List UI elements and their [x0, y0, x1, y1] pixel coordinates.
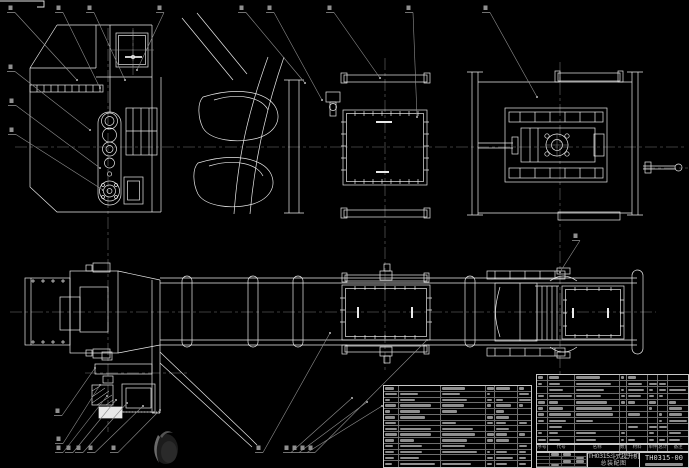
- cell-text-smudge: [669, 389, 686, 392]
- cell-text-smudge: [538, 395, 544, 398]
- bom-cell: [575, 375, 619, 380]
- bom-cell: [620, 375, 627, 380]
- cell-text-smudge: [659, 420, 662, 423]
- cell-text-smudge: [442, 410, 457, 413]
- cell-text-smudge: [385, 416, 395, 419]
- cell-text-smudge: [496, 422, 506, 425]
- bom-cell: [627, 387, 649, 392]
- bom-cell: [495, 392, 518, 397]
- bom-cell: [518, 386, 531, 391]
- cell-text-smudge: [487, 463, 492, 466]
- bom-cell: [384, 415, 399, 420]
- bom-cell: [441, 403, 487, 408]
- bom-cell: [575, 394, 619, 399]
- cell-text-smudge: [659, 395, 663, 398]
- bom-row: [384, 461, 531, 467]
- callout: [291, 401, 368, 453]
- bom-cell: [495, 426, 518, 431]
- cell-text-smudge: [385, 422, 396, 425]
- cell-text-smudge: [538, 401, 545, 404]
- cell-text-smudge: [519, 399, 531, 402]
- cell-text-smudge: [519, 393, 529, 396]
- bom-cell: [648, 400, 658, 405]
- bom-cell: [548, 381, 576, 386]
- bom-cell: [620, 437, 627, 443]
- cell-text-smudge: [519, 463, 526, 466]
- callout: [136, 6, 164, 72]
- bom-cell: [575, 412, 619, 417]
- bom-header-cell: 材料: [627, 445, 649, 451]
- bom-cell: [575, 406, 619, 411]
- cell-text-smudge: [442, 463, 471, 466]
- callout-number: [293, 446, 297, 451]
- bom-cell: [627, 406, 649, 411]
- bom-cell: [384, 386, 399, 391]
- bom-cell: [495, 432, 518, 437]
- callout-number: [240, 6, 244, 11]
- cell-text-smudge: [400, 404, 431, 407]
- bom-cell: [518, 409, 531, 414]
- cell-text-smudge: [576, 460, 584, 463]
- bom-cell: [384, 398, 399, 403]
- cell-text-smudge: [621, 401, 626, 404]
- bom-cell: [518, 415, 531, 420]
- bom-cell: [495, 450, 518, 455]
- cell-text-smudge: [563, 460, 571, 463]
- cell-text-smudge: [576, 420, 592, 423]
- bom-cell: [441, 415, 487, 420]
- bom-cell: [441, 398, 487, 403]
- cell-text-smudge: [576, 389, 603, 392]
- bom-cell: [668, 400, 688, 405]
- bom-cell: [537, 406, 548, 411]
- bom-cell: [627, 412, 649, 417]
- cell-text-smudge: [563, 453, 571, 456]
- bom-cell: [658, 412, 668, 417]
- bom-cell: [658, 381, 668, 386]
- cell-text-smudge: [576, 457, 584, 460]
- callout-number: [407, 6, 411, 11]
- cell-text-smudge: [576, 432, 596, 435]
- bom-cell: [486, 461, 495, 467]
- bom-cell: [441, 421, 487, 426]
- callout: [8, 99, 101, 170]
- cell-text-smudge: [659, 413, 662, 416]
- bom-header-cell: 备注: [668, 445, 688, 451]
- bom-cell: [399, 409, 441, 414]
- cell-text-smudge: [538, 432, 542, 435]
- bom-cell: [486, 444, 495, 449]
- cell-text-smudge: [442, 428, 473, 431]
- bom-cell: [399, 461, 441, 467]
- bom-cell: [486, 438, 495, 443]
- bom-cell: [627, 431, 649, 436]
- cell-text-smudge: [551, 464, 559, 467]
- callout-number: [67, 446, 71, 451]
- bom-cell: [495, 403, 518, 408]
- cell-text-smudge: [576, 401, 607, 404]
- bom-cell: [399, 392, 441, 397]
- bom-cell: [518, 455, 531, 460]
- callout-number: [88, 6, 92, 11]
- bom-cell: [495, 386, 518, 391]
- bom-cell: [495, 398, 518, 403]
- cell-text-smudge: [551, 453, 559, 456]
- bom-cell: [627, 400, 649, 405]
- cell-text-smudge: [496, 387, 510, 390]
- cell-text-smudge: [385, 387, 394, 390]
- cell-text-smudge: [487, 439, 493, 442]
- callout: [7, 65, 91, 132]
- cad-drawing-canvas: 序号代号名称数量材料单件总计备注 TH0315斗式提升机 总装配图 TH0315…: [0, 0, 689, 468]
- callout: [86, 6, 126, 82]
- cell-text-smudge: [576, 376, 600, 379]
- callout-number: [57, 446, 61, 451]
- bom-cell: [518, 444, 531, 449]
- callout: [559, 234, 580, 274]
- bom-cell: [620, 412, 627, 417]
- revision-grid-cell: [575, 464, 588, 468]
- bom-header-row: 序号代号名称数量材料单件总计备注: [536, 444, 689, 452]
- sheet-title: 总装配图: [600, 460, 626, 467]
- cell-text-smudge: [385, 439, 394, 442]
- bom-cell: [648, 418, 658, 423]
- cell-text-smudge: [628, 376, 637, 379]
- callout-number: [309, 446, 313, 451]
- cell-text-smudge: [659, 389, 666, 392]
- cell-text-smudge: [669, 439, 680, 442]
- cell-text-smudge: [621, 389, 625, 392]
- callout-number: [9, 65, 13, 70]
- bom-cell: [620, 381, 627, 386]
- bom-cell: [548, 400, 576, 405]
- cell-text-smudge: [621, 432, 625, 435]
- bom-cell: [658, 394, 668, 399]
- cell-text-smudge: [628, 439, 636, 442]
- cell-text-smudge: [487, 451, 490, 454]
- bom-cell: [441, 438, 487, 443]
- drawing-number-cell: TH0315-00: [640, 453, 688, 467]
- cell-text-smudge: [538, 420, 544, 423]
- callout-number: [10, 128, 14, 133]
- cell-text-smudge: [549, 401, 558, 404]
- cell-text-smudge: [538, 439, 546, 442]
- bom-cell: [486, 455, 495, 460]
- cell-text-smudge: [549, 395, 572, 398]
- bom-table-left: [383, 385, 532, 468]
- bom-cell: [495, 455, 518, 460]
- cell-text-smudge: [496, 439, 508, 442]
- cell-text-smudge: [400, 445, 422, 448]
- bom-cell: [575, 418, 619, 423]
- revision-grid-cell: [562, 464, 575, 468]
- bom-cell: [441, 409, 487, 414]
- bom-cell: [668, 375, 688, 380]
- bom-cell: [399, 403, 441, 408]
- bom-cell: [548, 424, 576, 429]
- callout: [255, 332, 331, 453]
- callout: [55, 6, 101, 90]
- callout-number: [158, 6, 162, 11]
- cell-text-smudge: [496, 399, 503, 402]
- bom-cell: [658, 431, 668, 436]
- bom-cell: [399, 432, 441, 437]
- bom-cell: [441, 461, 487, 467]
- cell-text-smudge: [487, 387, 494, 390]
- callout-number: [257, 446, 261, 451]
- bom-cell: [518, 461, 531, 467]
- bom-cell: [441, 426, 487, 431]
- centerlines: [10, 28, 688, 432]
- cell-text-smudge: [549, 432, 558, 435]
- bom-cell: [495, 444, 518, 449]
- bom-table-right: [536, 374, 689, 444]
- cell-text-smudge: [628, 395, 641, 398]
- bom-cell: [548, 412, 576, 417]
- cell-text-smudge: [649, 383, 656, 386]
- bom-cell: [648, 424, 658, 429]
- cell-text-smudge: [649, 407, 652, 410]
- bom-cell: [575, 437, 619, 443]
- bom-cell: [658, 406, 668, 411]
- cell-text-smudge: [659, 439, 664, 442]
- cell-text-smudge: [385, 428, 397, 431]
- bom-cell: [384, 392, 399, 397]
- cell-text-smudge: [400, 457, 419, 460]
- bom-header-cell: 数量: [620, 445, 627, 451]
- bom-cell: [548, 387, 576, 392]
- bom-cell: [384, 455, 399, 460]
- bom-cell: [648, 394, 658, 399]
- callout: [299, 405, 383, 453]
- bom-cell: [537, 412, 548, 417]
- cell-text-smudge: [628, 383, 642, 386]
- cell-text-smudge: [385, 393, 397, 396]
- callout: [482, 6, 538, 99]
- bom-cell: [620, 394, 627, 399]
- cell-text-smudge: [576, 439, 595, 442]
- bom-cell: [658, 437, 668, 443]
- cell-text-smudge: [496, 416, 508, 419]
- bom-cell: [384, 409, 399, 414]
- bom-cell: [648, 437, 658, 443]
- bom-cell: [648, 381, 658, 386]
- cell-text-smudge: [519, 404, 523, 407]
- cell-text-smudge: [487, 457, 493, 460]
- cell-text-smudge: [442, 422, 456, 425]
- bom-cell: [384, 403, 399, 408]
- cell-text-smudge: [519, 422, 527, 425]
- bom-cell: [548, 375, 576, 380]
- cell-text-smudge: [576, 383, 610, 386]
- bom-cell: [648, 431, 658, 436]
- bom-cell: [648, 412, 658, 417]
- cell-text-smudge: [385, 463, 392, 466]
- bom-header-cell: 单件: [648, 445, 658, 451]
- cell-text-smudge: [385, 410, 390, 413]
- cell-text-smudge: [649, 401, 656, 404]
- drawing-title-cell: TH0315斗式提升机 总装配图: [588, 453, 640, 467]
- cell-text-smudge: [628, 389, 644, 392]
- callout: [54, 367, 96, 416]
- bom-cell: [658, 400, 668, 405]
- cell-text-smudge: [487, 393, 490, 396]
- cell-text-smudge: [442, 399, 468, 402]
- bom-cell: [648, 387, 658, 392]
- bom-cell: [620, 424, 627, 429]
- cell-text-smudge: [385, 451, 394, 454]
- cell-text-smudge: [442, 451, 477, 454]
- bom-cell: [399, 398, 441, 403]
- cell-text-smudge: [442, 445, 465, 448]
- callout-number: [268, 6, 272, 11]
- cell-text-smudge: [549, 383, 560, 386]
- cell-text-smudge: [496, 433, 507, 436]
- bom-cell: [384, 438, 399, 443]
- title-block: TH0315斗式提升机 总装配图 TH0315-00: [536, 452, 689, 468]
- bom-cell: [548, 418, 576, 423]
- cell-text-smudge: [496, 404, 511, 407]
- callout-number: [77, 446, 81, 451]
- bom-cell: [575, 387, 619, 392]
- bom-cell: [620, 400, 627, 405]
- cell-text-smudge: [549, 426, 562, 429]
- bom-cell: [384, 461, 399, 467]
- cell-text-smudge: [649, 426, 657, 429]
- bom-cell: [399, 438, 441, 443]
- bom-cell: [495, 415, 518, 420]
- bom-cell: [486, 421, 495, 426]
- cell-text-smudge: [576, 407, 611, 410]
- cell-text-smudge: [400, 463, 436, 466]
- bom-cell: [537, 387, 548, 392]
- sheet-border-corner: [0, 1, 44, 7]
- cell-text-smudge: [385, 457, 394, 460]
- cell-text-smudge: [621, 439, 624, 442]
- cell-text-smudge: [628, 426, 638, 429]
- cell-text-smudge: [649, 395, 653, 398]
- bom-cell: [575, 431, 619, 436]
- cell-text-smudge: [400, 399, 415, 402]
- bom-cell: [658, 418, 668, 423]
- cell-text-smudge: [519, 387, 524, 390]
- bom-cell: [648, 406, 658, 411]
- callout-number: [484, 6, 488, 11]
- bom-cell: [441, 432, 487, 437]
- bom-cell: [537, 381, 548, 386]
- cell-text-smudge: [487, 416, 493, 419]
- bom-cell: [648, 375, 658, 380]
- cell-text-smudge: [487, 433, 493, 436]
- callout: [326, 6, 381, 80]
- cell-text-smudge: [538, 376, 543, 379]
- cell-text-smudge: [385, 433, 397, 436]
- bom-cell: [668, 394, 688, 399]
- callout-number: [56, 409, 60, 414]
- bom-cell: [495, 461, 518, 467]
- bom-cell: [495, 409, 518, 414]
- bom-cell: [537, 431, 548, 436]
- bom-cell: [548, 437, 576, 443]
- revision-grid-cell: [550, 464, 563, 468]
- bom-cell: [575, 424, 619, 429]
- cell-text-smudge: [549, 389, 563, 392]
- cell-text-smudge: [487, 399, 492, 402]
- bom-cell: [548, 406, 576, 411]
- bom-cell: [384, 450, 399, 455]
- callout-number: [57, 6, 61, 11]
- cell-text-smudge: [496, 428, 508, 431]
- bom-cell: [486, 450, 495, 455]
- cell-text-smudge: [496, 451, 507, 454]
- cell-text-smudge: [538, 407, 543, 410]
- bom-cell: [668, 431, 688, 436]
- bom-cell: [441, 392, 487, 397]
- callout-number: [9, 6, 13, 11]
- cell-text-smudge: [400, 416, 425, 419]
- cell-text-smudge: [400, 428, 431, 431]
- bom-header-cell: 名称: [575, 445, 619, 451]
- cell-text-smudge: [659, 426, 667, 429]
- cell-text-smudge: [442, 387, 465, 390]
- cell-text-smudge: [669, 401, 675, 404]
- cell-text-smudge: [669, 413, 681, 416]
- bom-cell: [518, 438, 531, 443]
- cell-text-smudge: [628, 401, 635, 404]
- bom-cell: [384, 432, 399, 437]
- cell-text-smudge: [549, 376, 559, 379]
- bom-row: [537, 437, 688, 443]
- bom-cell: [548, 394, 576, 399]
- bom-cell: [537, 437, 548, 443]
- bom-cell: [627, 394, 649, 399]
- callout-number: [285, 446, 289, 451]
- cell-text-smudge: [442, 404, 465, 407]
- bom-cell: [668, 406, 688, 411]
- watermark-logo: [154, 431, 178, 464]
- cell-text-smudge: [669, 407, 682, 410]
- cell-text-smudge: [496, 410, 504, 413]
- cell-text-smudge: [549, 413, 571, 416]
- bom-cell: [668, 424, 688, 429]
- bom-cell: [620, 431, 627, 436]
- bom-cell: [575, 400, 619, 405]
- bom-cell: [486, 432, 495, 437]
- revision-grid-cell: [537, 464, 550, 468]
- drawing-number: TH0315-00: [645, 454, 683, 462]
- cell-text-smudge: [519, 451, 526, 454]
- bom-cell: [399, 455, 441, 460]
- cell-text-smudge: [519, 445, 527, 448]
- bom-cell: [441, 450, 487, 455]
- bom-cell: [518, 432, 531, 437]
- cell-text-smudge: [496, 463, 506, 466]
- bom-cell: [518, 426, 531, 431]
- bom-cell: [495, 421, 518, 426]
- bom-cell: [518, 392, 531, 397]
- bom-cell: [668, 381, 688, 386]
- bom-cell: [658, 424, 668, 429]
- bom-cell: [399, 444, 441, 449]
- bom-cell: [620, 406, 627, 411]
- bom-cell: [399, 426, 441, 431]
- bom-cell: [537, 375, 548, 380]
- bom-cell: [627, 418, 649, 423]
- bom-cell: [486, 392, 495, 397]
- cell-text-smudge: [549, 439, 560, 442]
- cell-text-smudge: [649, 432, 654, 435]
- bom-cell: [518, 403, 531, 408]
